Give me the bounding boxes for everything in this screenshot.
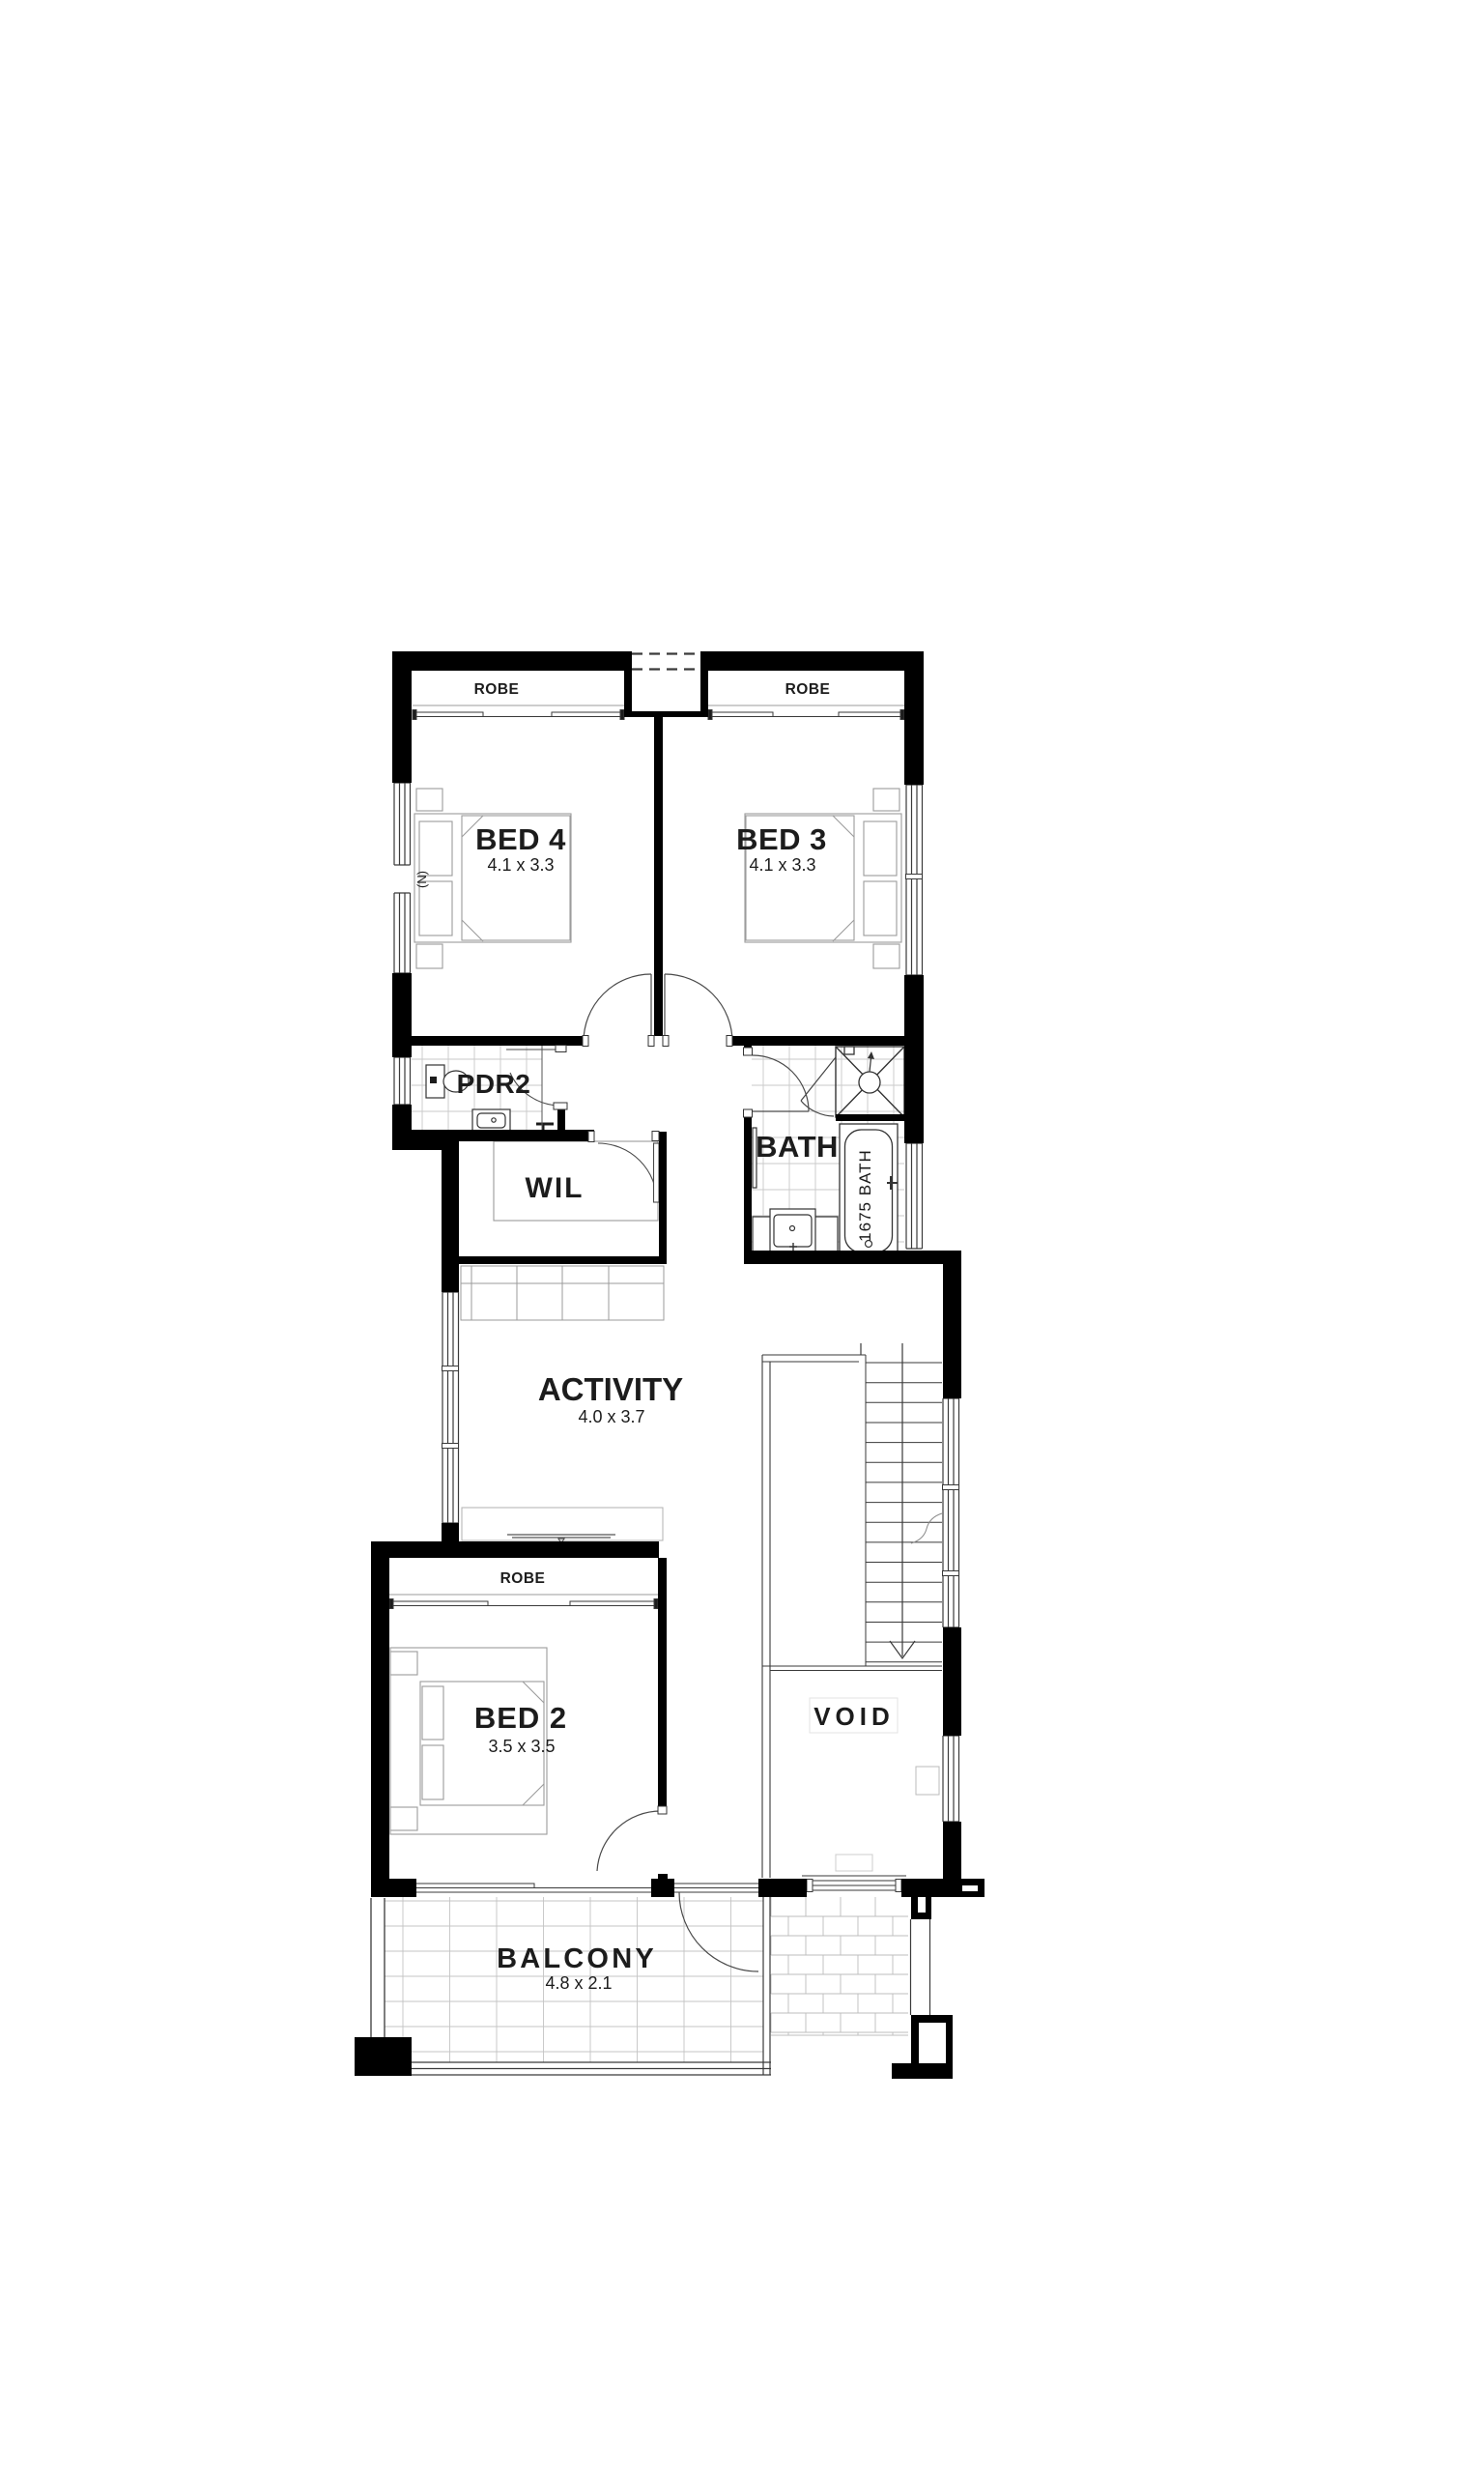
svg-text:ACTIVITY: ACTIVITY: [538, 1371, 683, 1407]
svg-text:4.1 x 3.3: 4.1 x 3.3: [749, 855, 815, 875]
svg-text:ROBE: ROBE: [474, 681, 520, 698]
svg-text:BATH: BATH: [756, 1130, 839, 1164]
svg-text:ROBE: ROBE: [500, 1570, 546, 1587]
svg-text:(N): (N): [414, 871, 429, 888]
svg-text:BED 2: BED 2: [474, 1701, 567, 1735]
svg-text:VOID: VOID: [813, 1702, 895, 1731]
svg-text:BED 4: BED 4: [475, 822, 566, 856]
svg-text:4.1 x 3.3: 4.1 x 3.3: [487, 855, 554, 875]
svg-text:4.8 x 2.1: 4.8 x 2.1: [545, 1973, 612, 1993]
svg-text:BED 3: BED 3: [736, 822, 827, 856]
svg-text:WIL: WIL: [526, 1172, 585, 1204]
svg-text:4.0 x 3.7: 4.0 x 3.7: [578, 1407, 644, 1426]
svg-text:1675 BATH: 1675 BATH: [856, 1149, 874, 1242]
svg-text:BALCONY: BALCONY: [497, 1943, 657, 1974]
svg-text:ROBE: ROBE: [785, 681, 831, 698]
svg-text:PDR2: PDR2: [457, 1069, 531, 1099]
svg-text:3.5 x 3.5: 3.5 x 3.5: [488, 1737, 555, 1756]
